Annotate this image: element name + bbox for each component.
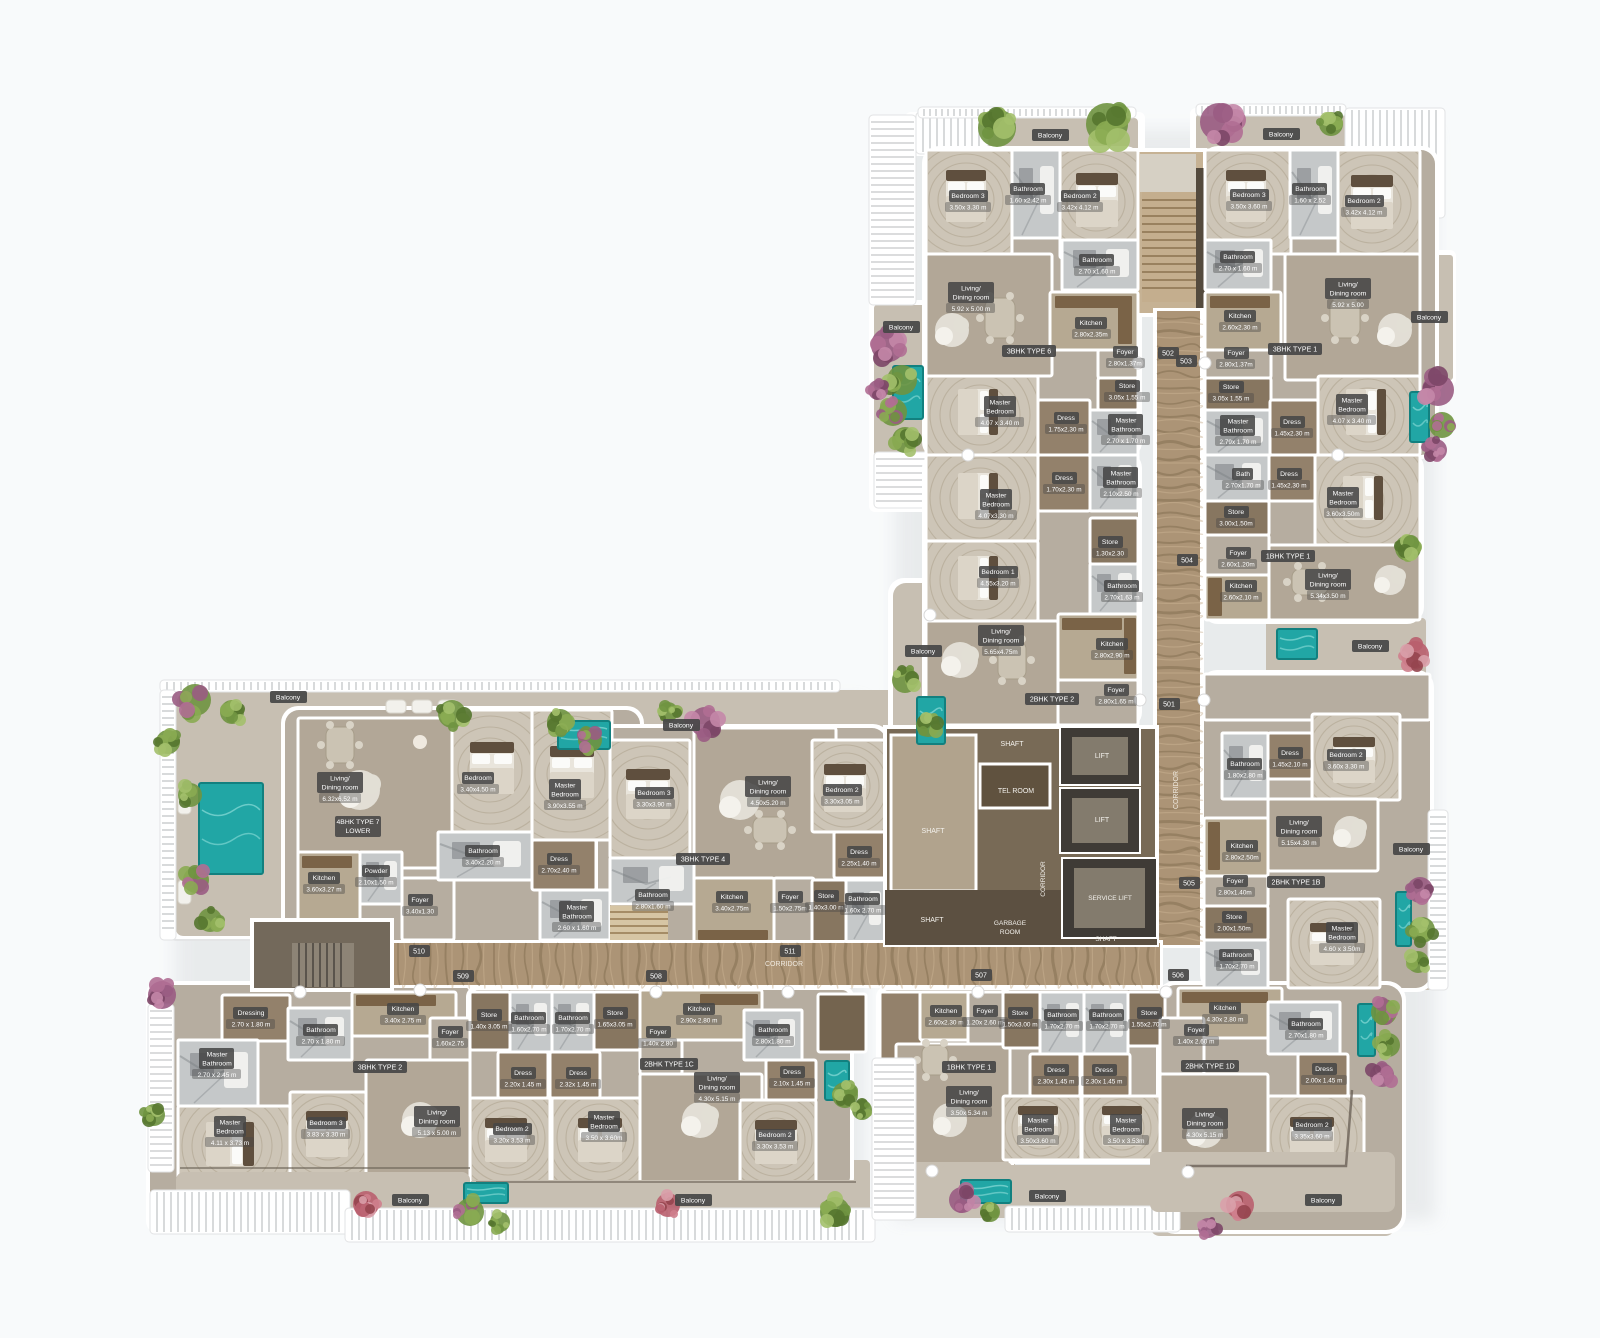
svg-text:Store: Store <box>1102 539 1118 546</box>
svg-text:Balcony: Balcony <box>276 694 301 701</box>
svg-text:510: 510 <box>413 949 425 956</box>
svg-text:Bedroom: Bedroom <box>1112 1127 1140 1134</box>
svg-text:3.30x3.05 m: 3.30x3.05 m <box>824 799 859 806</box>
svg-text:Living/: Living/ <box>707 1076 727 1083</box>
svg-text:Powder: Powder <box>364 868 388 875</box>
svg-text:CORRIDOR: CORRIDOR <box>1173 771 1180 809</box>
svg-text:1.70x2.70 m: 1.70x2.70 m <box>555 1027 590 1034</box>
svg-text:Bedroom: Bedroom <box>1329 500 1357 507</box>
svg-text:Foyer: Foyer <box>441 1029 459 1036</box>
svg-text:2.32x 1.45 m: 2.32x 1.45 m <box>560 1082 597 1089</box>
svg-text:TEL ROOM: TEL ROOM <box>998 788 1034 795</box>
svg-text:Master: Master <box>207 1052 229 1059</box>
svg-text:4.30x 5.15 m: 4.30x 5.15 m <box>1187 1132 1224 1139</box>
svg-text:3.30x 3.53 m: 3.30x 3.53 m <box>757 1144 794 1151</box>
svg-text:Kitchen: Kitchen <box>1101 641 1124 648</box>
svg-text:Balcony: Balcony <box>911 648 936 655</box>
svg-text:Kitchen: Kitchen <box>1080 320 1103 327</box>
svg-text:3.05x 1.55 m: 3.05x 1.55 m <box>1213 396 1250 403</box>
svg-text:SHAFT: SHAFT <box>1095 936 1116 943</box>
svg-text:Dining room: Dining room <box>750 789 787 796</box>
svg-text:3.20x 3.53 m: 3.20x 3.53 m <box>494 1138 531 1145</box>
svg-text:Bedroom: Bedroom <box>1338 407 1366 414</box>
svg-text:3.05x 1.55 m: 3.05x 1.55 m <box>1109 395 1146 402</box>
svg-text:507: 507 <box>975 973 987 980</box>
svg-text:5.92 x 5.00: 5.92 x 5.00 <box>1332 302 1364 309</box>
svg-text:2.80x1.40m: 2.80x1.40m <box>1218 890 1251 897</box>
svg-text:Master: Master <box>986 493 1008 500</box>
svg-text:Bedroom: Bedroom <box>464 775 492 782</box>
svg-text:3.50x 3.60 m: 3.50x 3.60 m <box>1231 204 1268 211</box>
svg-text:3.90x3.55 m: 3.90x3.55 m <box>547 803 582 810</box>
svg-text:3.60x 3.30 m: 3.60x 3.30 m <box>1328 764 1365 771</box>
svg-text:Dress: Dress <box>1283 419 1301 426</box>
svg-text:2.80x2.35m: 2.80x2.35m <box>1074 332 1107 339</box>
svg-text:Dress: Dress <box>514 1070 532 1077</box>
svg-text:1.70x2.70 m: 1.70x2.70 m <box>1219 964 1254 971</box>
svg-text:3BHK TYPE 2: 3BHK TYPE 2 <box>358 1065 402 1072</box>
svg-text:Bath: Bath <box>1236 471 1250 478</box>
svg-text:Kitchen: Kitchen <box>392 1006 415 1013</box>
svg-text:2BHK TYPE 2: 2BHK TYPE 2 <box>1030 697 1074 704</box>
svg-text:Bathroom: Bathroom <box>306 1027 336 1034</box>
svg-text:2.79x 1.70 m: 2.79x 1.70 m <box>1220 439 1257 446</box>
svg-text:Master: Master <box>1332 926 1354 933</box>
svg-text:Bedroom: Bedroom <box>590 1124 618 1131</box>
svg-text:Bathroom: Bathroom <box>758 1027 788 1034</box>
svg-text:ROOM: ROOM <box>1000 929 1020 936</box>
svg-text:5.13 x 5.00 m: 5.13 x 5.00 m <box>418 1130 457 1137</box>
svg-text:Master: Master <box>220 1120 242 1127</box>
svg-text:1.60x2.70 m: 1.60x2.70 m <box>511 1027 546 1034</box>
svg-text:Bathroom: Bathroom <box>1223 428 1253 435</box>
svg-text:Master: Master <box>1342 398 1364 405</box>
svg-text:Dress: Dress <box>550 856 568 863</box>
svg-text:504: 504 <box>1181 558 1193 565</box>
svg-text:2.00x1.50m: 2.00x1.50m <box>1217 926 1250 933</box>
svg-text:SHAFT: SHAFT <box>921 917 945 924</box>
svg-text:1.50x3.00 m: 1.50x3.00 m <box>1002 1022 1037 1029</box>
svg-text:Bedroom: Bedroom <box>982 502 1010 509</box>
svg-text:Bathroom: Bathroom <box>638 892 668 899</box>
svg-text:Foyer: Foyer <box>1107 687 1125 694</box>
svg-text:Kitchen: Kitchen <box>1214 1005 1237 1012</box>
svg-text:2.30x 1.45 m: 2.30x 1.45 m <box>1086 1079 1123 1086</box>
svg-text:1.30x2.30: 1.30x2.30 <box>1096 551 1125 558</box>
svg-text:CORRIDOR: CORRIDOR <box>765 961 803 968</box>
svg-text:Dining room: Dining room <box>1281 829 1318 836</box>
svg-text:1.40x 2.60 m: 1.40x 2.60 m <box>1178 1039 1215 1046</box>
svg-text:Store: Store <box>1012 1010 1028 1017</box>
svg-text:2.70 x1.60 m: 2.70 x1.60 m <box>1079 269 1116 276</box>
svg-text:Living/: Living/ <box>330 776 350 783</box>
svg-text:Balcony: Balcony <box>669 722 694 729</box>
svg-text:1.60 x 2.52: 1.60 x 2.52 <box>1294 198 1326 205</box>
svg-text:6.32x6.52 m: 6.32x6.52 m <box>322 796 357 803</box>
svg-text:Foyer: Foyer <box>1116 349 1134 356</box>
svg-text:Dining room: Dining room <box>1330 291 1367 298</box>
svg-text:2.60x2.10 m: 2.60x2.10 m <box>1223 595 1258 602</box>
svg-text:1BHK TYPE 1: 1BHK TYPE 1 <box>947 1065 991 1072</box>
svg-text:Living/: Living/ <box>427 1110 447 1117</box>
svg-text:Dress: Dress <box>1047 1067 1065 1074</box>
svg-text:3BHK TYPE 1: 3BHK TYPE 1 <box>1273 347 1317 354</box>
svg-text:Dining room: Dining room <box>419 1119 456 1126</box>
svg-text:SHAFT: SHAFT <box>1001 741 1025 748</box>
svg-text:Master: Master <box>1116 418 1138 425</box>
svg-text:2.10x2.50 m: 2.10x2.50 m <box>1103 491 1138 498</box>
svg-text:Dining room: Dining room <box>953 295 990 302</box>
svg-text:Master: Master <box>1028 1118 1050 1125</box>
svg-text:1.45x2.30 m: 1.45x2.30 m <box>1271 483 1306 490</box>
svg-text:1.40x3.00 m: 1.40x3.00 m <box>808 905 843 912</box>
svg-text:3.40x4.50 m: 3.40x4.50 m <box>460 787 495 794</box>
svg-text:Balcony: Balcony <box>1038 132 1063 139</box>
svg-text:2.80x1.37m: 2.80x1.37m <box>1108 361 1141 368</box>
svg-text:Bathroom: Bathroom <box>1291 1021 1321 1028</box>
svg-text:Dress: Dress <box>1057 415 1075 422</box>
svg-text:1.70x2.30 m: 1.70x2.30 m <box>1046 487 1081 494</box>
svg-text:1.70x2.70 m: 1.70x2.70 m <box>1044 1024 1079 1031</box>
svg-text:508: 508 <box>650 974 662 981</box>
svg-text:3.60x3.27 m: 3.60x3.27 m <box>306 887 341 894</box>
svg-text:Bathroom: Bathroom <box>848 896 878 903</box>
svg-text:3.50x 3.30 m: 3.50x 3.30 m <box>950 205 987 212</box>
svg-text:Dress: Dress <box>783 1069 801 1076</box>
svg-text:Bathroom: Bathroom <box>1092 1012 1122 1019</box>
svg-text:Bedroom: Bedroom <box>551 792 579 799</box>
svg-text:4.11 x 3.73 m: 4.11 x 3.73 m <box>211 1140 249 1147</box>
svg-text:1.45x2.10 m: 1.45x2.10 m <box>1272 762 1307 769</box>
svg-text:Bathroom: Bathroom <box>1013 186 1043 193</box>
svg-text:Balcony: Balcony <box>398 1197 423 1204</box>
svg-text:Dining room: Dining room <box>699 1085 736 1092</box>
svg-text:Dining room: Dining room <box>951 1099 988 1106</box>
svg-text:Balcony: Balcony <box>681 1197 706 1204</box>
svg-text:Living/: Living/ <box>959 1090 979 1097</box>
svg-text:2.10x 1.45 m: 2.10x 1.45 m <box>774 1081 811 1088</box>
svg-text:Bedroom 1: Bedroom 1 <box>981 569 1014 576</box>
svg-text:2.60x1.20m: 2.60x1.20m <box>1221 562 1254 569</box>
svg-text:3.60x3.50m: 3.60x3.50m <box>1326 511 1359 518</box>
svg-text:2.70x1.80 m: 2.70x1.80 m <box>1288 1033 1323 1040</box>
svg-text:2.70x1.63 m: 2.70x1.63 m <box>1104 595 1139 602</box>
svg-text:Living/: Living/ <box>961 286 981 293</box>
svg-text:5.92 x 5.00 m: 5.92 x 5.00 m <box>952 306 991 313</box>
svg-text:Dressing: Dressing <box>238 1010 265 1017</box>
svg-text:4BHK TYPE 7: 4BHK TYPE 7 <box>337 819 380 826</box>
svg-text:Master: Master <box>1111 471 1133 478</box>
svg-text:SHAFT: SHAFT <box>922 828 946 835</box>
svg-text:Foyer: Foyer <box>781 894 799 901</box>
svg-text:5.34x3.50 m: 5.34x3.50 m <box>1310 593 1345 600</box>
svg-text:Kitchen: Kitchen <box>688 1006 711 1013</box>
svg-text:509: 509 <box>457 974 469 981</box>
svg-text:Bedroom 2: Bedroom 2 <box>1063 193 1096 200</box>
svg-text:Dress: Dress <box>1281 750 1299 757</box>
svg-text:2.60 x 1.60 m: 2.60 x 1.60 m <box>558 925 597 932</box>
svg-text:Kitchen: Kitchen <box>721 894 744 901</box>
svg-text:506: 506 <box>1172 973 1184 980</box>
svg-text:Master: Master <box>1333 491 1355 498</box>
svg-text:Dining room: Dining room <box>1187 1121 1224 1128</box>
svg-text:2.80x1.65 m: 2.80x1.65 m <box>1098 699 1133 706</box>
svg-text:LIFT: LIFT <box>1095 753 1110 760</box>
svg-text:5.65x4.75m: 5.65x4.75m <box>984 649 1017 656</box>
svg-text:505: 505 <box>1183 881 1195 888</box>
svg-text:2.70x2.40 m: 2.70x2.40 m <box>541 868 576 875</box>
svg-text:503: 503 <box>1180 359 1192 366</box>
svg-text:Living/: Living/ <box>1338 282 1358 289</box>
svg-text:4.60 x 3.50m: 4.60 x 3.50m <box>1324 946 1361 953</box>
svg-text:Living/: Living/ <box>1195 1112 1215 1119</box>
svg-text:3.50 x 3.60m: 3.50 x 3.60m <box>586 1135 623 1142</box>
svg-text:1.40x 3.05 m: 1.40x 3.05 m <box>471 1024 508 1031</box>
svg-text:3.50x3.60 m: 3.50x3.60 m <box>1020 1138 1055 1145</box>
svg-text:2.70 x 1.80 m: 2.70 x 1.80 m <box>302 1039 341 1046</box>
svg-text:Bathroom: Bathroom <box>562 914 592 921</box>
svg-text:Bathroom: Bathroom <box>1082 257 1112 264</box>
svg-text:SERVICE LIFT: SERVICE LIFT <box>1088 895 1132 902</box>
svg-text:Bathroom: Bathroom <box>1295 186 1325 193</box>
svg-text:2.80x1.37m: 2.80x1.37m <box>1219 362 1252 369</box>
svg-text:2.70 x 1.70 m: 2.70 x 1.70 m <box>1107 438 1146 445</box>
svg-text:Bedroom 2: Bedroom 2 <box>758 1132 791 1139</box>
svg-text:1.45x2.30 m: 1.45x2.30 m <box>1274 431 1309 438</box>
svg-text:511: 511 <box>784 949 795 956</box>
svg-text:Bathroom: Bathroom <box>468 848 498 855</box>
svg-text:Dress: Dress <box>1095 1067 1113 1074</box>
svg-text:4.07x3.30 m: 4.07x3.30 m <box>978 513 1013 520</box>
svg-text:2.80x2.90 m: 2.80x2.90 m <box>1094 653 1129 660</box>
svg-text:501: 501 <box>1163 702 1175 709</box>
svg-text:2.70x1.70 m: 2.70x1.70 m <box>1225 483 1260 490</box>
svg-text:Store: Store <box>1119 383 1135 390</box>
svg-text:Bathroom: Bathroom <box>1222 952 1252 959</box>
svg-text:Bedroom: Bedroom <box>1328 935 1356 942</box>
svg-text:Balcony: Balcony <box>1417 314 1442 321</box>
svg-text:3.83 x 3.30 m: 3.83 x 3.30 m <box>307 1132 346 1139</box>
svg-text:Balcony: Balcony <box>1269 131 1294 138</box>
svg-text:Store: Store <box>1141 1010 1157 1017</box>
svg-text:Bathroom: Bathroom <box>1047 1012 1077 1019</box>
svg-text:Bedroom 2: Bedroom 2 <box>1347 198 1380 205</box>
svg-text:Living/: Living/ <box>758 780 778 787</box>
svg-text:Store: Store <box>481 1012 497 1019</box>
svg-text:3.40x 2.75 m: 3.40x 2.75 m <box>385 1018 422 1025</box>
svg-text:2.00x 1.45 m: 2.00x 1.45 m <box>1306 1078 1343 1085</box>
svg-text:GARBAGE: GARBAGE <box>994 920 1027 927</box>
svg-text:Foyer: Foyer <box>411 897 429 904</box>
svg-text:Bedroom 3: Bedroom 3 <box>1232 192 1265 199</box>
svg-text:1.60 x2.42 m: 1.60 x2.42 m <box>1010 198 1047 205</box>
svg-text:Master: Master <box>1116 1118 1138 1125</box>
svg-text:2.80x2.50m: 2.80x2.50m <box>1225 855 1258 862</box>
svg-text:Living/: Living/ <box>991 629 1011 636</box>
svg-text:Foyer: Foyer <box>1229 550 1247 557</box>
svg-text:2.60x2.30 m: 2.60x2.30 m <box>928 1020 963 1027</box>
svg-text:Store: Store <box>1228 509 1244 516</box>
svg-text:3.35x3.60 m: 3.35x3.60 m <box>1294 1134 1329 1141</box>
svg-text:2.70 x 2.45 m: 2.70 x 2.45 m <box>198 1072 237 1079</box>
svg-text:5.15x4.30 m: 5.15x4.30 m <box>1281 840 1316 847</box>
svg-text:2.80x1.80 m: 2.80x1.80 m <box>755 1039 790 1046</box>
svg-text:Bedroom 2: Bedroom 2 <box>825 787 858 794</box>
svg-text:Foyer: Foyer <box>1187 1027 1205 1034</box>
svg-text:Dress: Dress <box>1055 475 1073 482</box>
svg-text:Bedroom: Bedroom <box>986 409 1014 416</box>
svg-text:Bedroom 3: Bedroom 3 <box>309 1120 342 1127</box>
svg-text:Kitchen: Kitchen <box>1230 583 1253 590</box>
svg-text:2.20x 1.45 m: 2.20x 1.45 m <box>505 1082 542 1089</box>
svg-text:3.40x1.30: 3.40x1.30 <box>406 909 435 916</box>
svg-text:4.07 x 3.40 m: 4.07 x 3.40 m <box>981 420 1020 427</box>
svg-text:Bathroom: Bathroom <box>514 1015 544 1022</box>
svg-text:Kitchen: Kitchen <box>1229 313 1252 320</box>
svg-text:3.40x2.75m: 3.40x2.75m <box>715 906 748 913</box>
svg-text:Bathroom: Bathroom <box>1106 480 1136 487</box>
svg-text:Bathroom: Bathroom <box>1223 254 1253 261</box>
svg-text:Master: Master <box>1228 419 1250 426</box>
svg-text:2.70 x 1.60 m: 2.70 x 1.60 m <box>1219 266 1258 273</box>
svg-text:1.80x2.80 m: 1.80x2.80 m <box>1227 773 1262 780</box>
svg-text:Bedroom 3: Bedroom 3 <box>951 193 984 200</box>
svg-text:3.50x 5.34 m: 3.50x 5.34 m <box>951 1110 988 1117</box>
svg-text:Master: Master <box>990 400 1012 407</box>
svg-text:Bathroom: Bathroom <box>1107 583 1137 590</box>
svg-text:2.80x1.60 m: 2.80x1.60 m <box>635 904 670 911</box>
svg-text:Foyer: Foyer <box>1227 350 1245 357</box>
svg-text:1.60x 2.70 m: 1.60x 2.70 m <box>845 908 882 915</box>
svg-text:Dress: Dress <box>569 1070 587 1077</box>
svg-text:3.42x 4.12 m: 3.42x 4.12 m <box>1062 205 1099 212</box>
svg-text:1.60x2.75: 1.60x2.75 <box>436 1041 465 1048</box>
svg-text:Bedroom: Bedroom <box>216 1129 244 1136</box>
svg-text:2.10x1.50 m: 2.10x1.50 m <box>358 880 393 887</box>
svg-text:4.30x 2.80 m: 4.30x 2.80 m <box>1207 1017 1244 1024</box>
svg-text:Master: Master <box>594 1115 616 1122</box>
svg-text:Kitchen: Kitchen <box>1231 843 1254 850</box>
svg-text:2.60x2.30 m: 2.60x2.30 m <box>1222 325 1257 332</box>
svg-text:Master: Master <box>555 783 577 790</box>
svg-text:4.50x5.20 m: 4.50x5.20 m <box>750 800 785 807</box>
svg-text:1.75x2.30 m: 1.75x2.30 m <box>1048 427 1083 434</box>
svg-text:Balcony: Balcony <box>889 324 914 331</box>
svg-text:1.20x 2.60 m: 1.20x 2.60 m <box>967 1020 1004 1027</box>
svg-text:2BHK TYPE 1B: 2BHK TYPE 1B <box>1272 880 1321 887</box>
svg-text:Store: Store <box>818 893 834 900</box>
svg-text:Store: Store <box>1223 384 1239 391</box>
svg-text:LIFT: LIFT <box>1095 817 1110 824</box>
svg-text:2.70 x 1.80 m: 2.70 x 1.80 m <box>232 1022 271 1029</box>
svg-text:Bathroom: Bathroom <box>202 1061 232 1068</box>
svg-text:Bathroom: Bathroom <box>1111 427 1141 434</box>
svg-text:1.70x2.70 m: 1.70x2.70 m <box>1089 1024 1124 1031</box>
svg-text:2.30x 1.45 m: 2.30x 1.45 m <box>1038 1079 1075 1086</box>
svg-text:4.07 x 3.40 m: 4.07 x 3.40 m <box>1333 418 1372 425</box>
svg-text:Balcony: Balcony <box>1035 1193 1060 1200</box>
svg-text:Bedroom 2: Bedroom 2 <box>495 1126 528 1133</box>
svg-text:3.30x3.90 m: 3.30x3.90 m <box>636 802 671 809</box>
svg-text:1.40x 2.80: 1.40x 2.80 <box>643 1041 673 1048</box>
svg-text:3.40x2.20 m: 3.40x2.20 m <box>465 860 500 867</box>
svg-text:Store: Store <box>607 1010 623 1017</box>
svg-text:Dress: Dress <box>850 849 868 856</box>
svg-text:Bathroom: Bathroom <box>558 1015 588 1022</box>
svg-text:LOWER: LOWER <box>346 828 371 835</box>
svg-text:Dress: Dress <box>1315 1066 1333 1073</box>
svg-text:Kitchen: Kitchen <box>935 1008 958 1015</box>
svg-text:Bedroom 2: Bedroom 2 <box>1329 752 1362 759</box>
svg-text:Dining room: Dining room <box>983 638 1020 645</box>
svg-text:3BHK TYPE 6: 3BHK TYPE 6 <box>1007 349 1051 356</box>
svg-text:1.50x2.75m: 1.50x2.75m <box>773 906 806 913</box>
svg-text:1.65x3.05 m: 1.65x3.05 m <box>597 1022 632 1029</box>
svg-text:2BHK TYPE 1C: 2BHK TYPE 1C <box>644 1062 693 1069</box>
svg-text:Bedroom: Bedroom <box>1024 1127 1052 1134</box>
svg-text:Bathroom: Bathroom <box>1230 761 1260 768</box>
svg-text:Balcony: Balcony <box>1358 643 1383 650</box>
svg-text:Balcony: Balcony <box>1399 846 1424 853</box>
svg-text:Store: Store <box>1226 914 1242 921</box>
svg-text:2BHK TYPE 1D: 2BHK TYPE 1D <box>1185 1064 1234 1071</box>
svg-text:4.30x 5.15 m: 4.30x 5.15 m <box>699 1096 736 1103</box>
svg-text:Dining room: Dining room <box>322 785 359 792</box>
svg-text:Dress: Dress <box>1280 471 1298 478</box>
svg-text:502: 502 <box>1162 351 1174 358</box>
svg-text:Bedroom 3: Bedroom 3 <box>637 790 670 797</box>
svg-text:CORRIDOR: CORRIDOR <box>1040 861 1047 897</box>
svg-text:Living/: Living/ <box>1289 820 1309 827</box>
svg-text:2.25x1.40 m: 2.25x1.40 m <box>841 861 876 868</box>
svg-text:Bedroom 2: Bedroom 2 <box>1295 1122 1328 1129</box>
svg-text:1BHK TYPE 1: 1BHK TYPE 1 <box>1266 554 1310 561</box>
svg-text:Balcony: Balcony <box>1311 1197 1336 1204</box>
svg-text:1.55x2.70 m: 1.55x2.70 m <box>1131 1022 1166 1029</box>
svg-text:Foyer: Foyer <box>649 1029 667 1036</box>
svg-text:Foyer: Foyer <box>1226 878 1244 885</box>
svg-text:Dining room: Dining room <box>1310 582 1347 589</box>
svg-text:3.50 x 3.53m: 3.50 x 3.53m <box>1108 1138 1145 1145</box>
svg-text:3.00x1.50m: 3.00x1.50m <box>1219 521 1252 528</box>
svg-text:Kitchen: Kitchen <box>313 875 336 882</box>
svg-text:3BHK TYPE 4: 3BHK TYPE 4 <box>681 857 725 864</box>
svg-text:Master: Master <box>567 905 589 912</box>
svg-text:3.42x 4.12 m: 3.42x 4.12 m <box>1346 210 1383 217</box>
svg-text:Living/: Living/ <box>1318 573 1338 580</box>
svg-text:2.90x 2.80 m: 2.90x 2.80 m <box>681 1018 718 1025</box>
svg-text:4.55x3.20 m: 4.55x3.20 m <box>980 581 1015 588</box>
svg-text:Foyer: Foyer <box>976 1008 994 1015</box>
